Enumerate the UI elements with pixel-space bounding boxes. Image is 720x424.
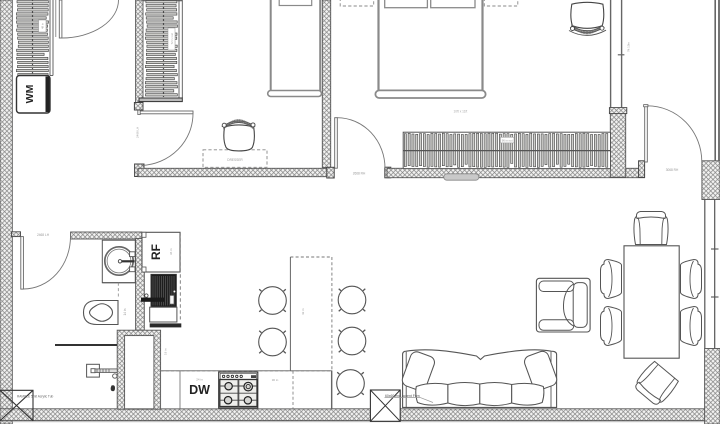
svg-text:24 in: 24 in — [196, 378, 203, 382]
svg-text:18 in: 18 in — [164, 348, 168, 355]
svg-text:72 in rod: 72 in rod — [170, 33, 174, 44]
svg-text:30 in: 30 in — [272, 378, 279, 382]
svg-text:RF: RF — [149, 244, 163, 260]
svg-text:WM: WM — [24, 84, 36, 103]
svg-text:10ft x 11ft: 10ft x 11ft — [454, 110, 468, 114]
svg-text:14 in: 14 in — [123, 308, 127, 315]
svg-text:2468 LH: 2468 LH — [37, 233, 50, 237]
svg-text:48 in: 48 in — [40, 23, 44, 30]
svg-text:2468 LH: 2468 LH — [136, 127, 140, 138]
svg-text:42 in: 42 in — [301, 308, 305, 315]
svg-text:DRESSER: DRESSER — [227, 158, 243, 162]
svg-text:60x60 end accent Furn: 60x60 end accent Furn — [385, 394, 420, 398]
svg-text:3068 RH: 3068 RH — [666, 168, 679, 172]
svg-text:2668 RH: 2668 RH — [353, 172, 366, 176]
svg-text:RAMBLE 5mlt Acrylic Tub: RAMBLE 5mlt Acrylic Tub — [17, 395, 54, 399]
svg-text:DW: DW — [189, 383, 210, 397]
svg-text:36 in: 36 in — [169, 248, 173, 255]
svg-text:7ft 10in: 7ft 10in — [627, 42, 631, 52]
svg-text:96 in rod: 96 in rod — [502, 139, 513, 143]
